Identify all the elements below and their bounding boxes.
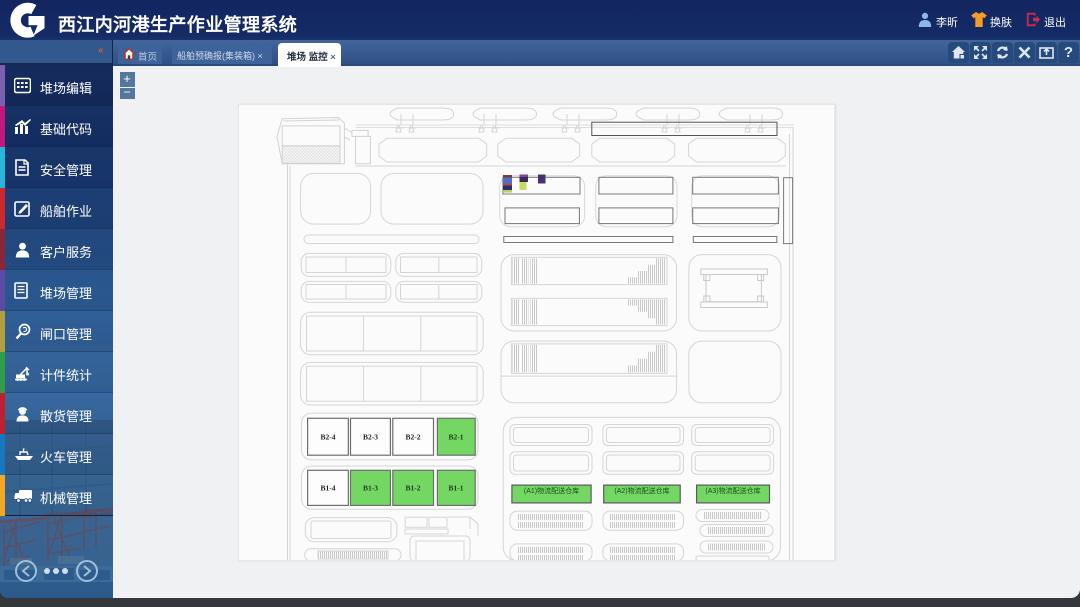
svg-text:B1-3: B1-3 (363, 484, 378, 493)
svg-text:(A2)物流配送仓库: (A2)物流配送仓库 (614, 486, 669, 495)
svg-text:B1-4: B1-4 (321, 484, 336, 493)
svg-text:B2-4: B2-4 (321, 433, 336, 442)
svg-text:(A3)物流配送仓库: (A3)物流配送仓库 (705, 486, 760, 495)
svg-text:(A1)物流配送仓库: (A1)物流配送仓库 (524, 486, 579, 495)
svg-text:B2-3: B2-3 (363, 433, 378, 442)
svg-text:B2-2: B2-2 (406, 433, 421, 442)
svg-text:B2-1: B2-1 (449, 433, 464, 442)
svg-text:B1-1: B1-1 (449, 484, 464, 493)
svg-text:B1-2: B1-2 (406, 484, 421, 493)
